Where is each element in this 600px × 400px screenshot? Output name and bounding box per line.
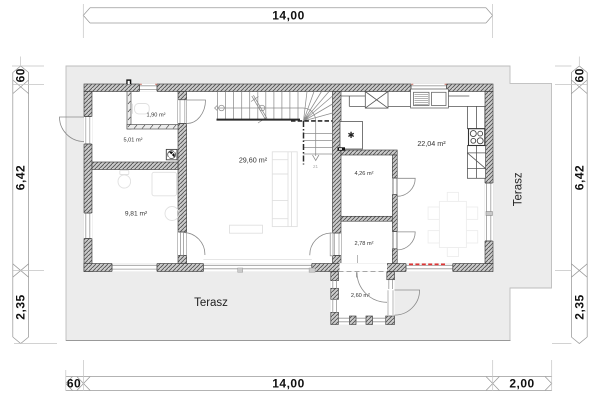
svg-text:60: 60 [572, 68, 586, 82]
svg-text:21: 21 [313, 164, 319, 169]
svg-text:2,78 m²: 2,78 m² [355, 241, 374, 247]
svg-text:5,01 m²: 5,01 m² [124, 138, 143, 144]
svg-text:14,00: 14,00 [272, 377, 305, 391]
svg-text:6,42: 6,42 [14, 165, 28, 190]
svg-text:14,00: 14,00 [272, 8, 305, 22]
svg-text:✱: ✱ [347, 130, 354, 140]
svg-text:2,35: 2,35 [572, 294, 586, 319]
svg-text:2,35: 2,35 [14, 294, 28, 319]
svg-text:Terasz: Terasz [194, 297, 228, 309]
svg-text:6,42: 6,42 [572, 165, 586, 190]
svg-text:22,04 m²: 22,04 m² [417, 139, 446, 148]
svg-text:4,26 m²: 4,26 m² [355, 171, 374, 177]
svg-text:2,00: 2,00 [509, 377, 534, 391]
svg-text:1,90 m²: 1,90 m² [147, 113, 166, 119]
svg-text:60: 60 [14, 68, 28, 82]
svg-text:Terasz: Terasz [513, 172, 525, 206]
svg-text:2,60 m²: 2,60 m² [351, 293, 370, 299]
svg-text:60: 60 [67, 377, 81, 391]
svg-text:29,60 m²: 29,60 m² [239, 155, 268, 164]
svg-text:9,81 m²: 9,81 m² [125, 210, 148, 217]
